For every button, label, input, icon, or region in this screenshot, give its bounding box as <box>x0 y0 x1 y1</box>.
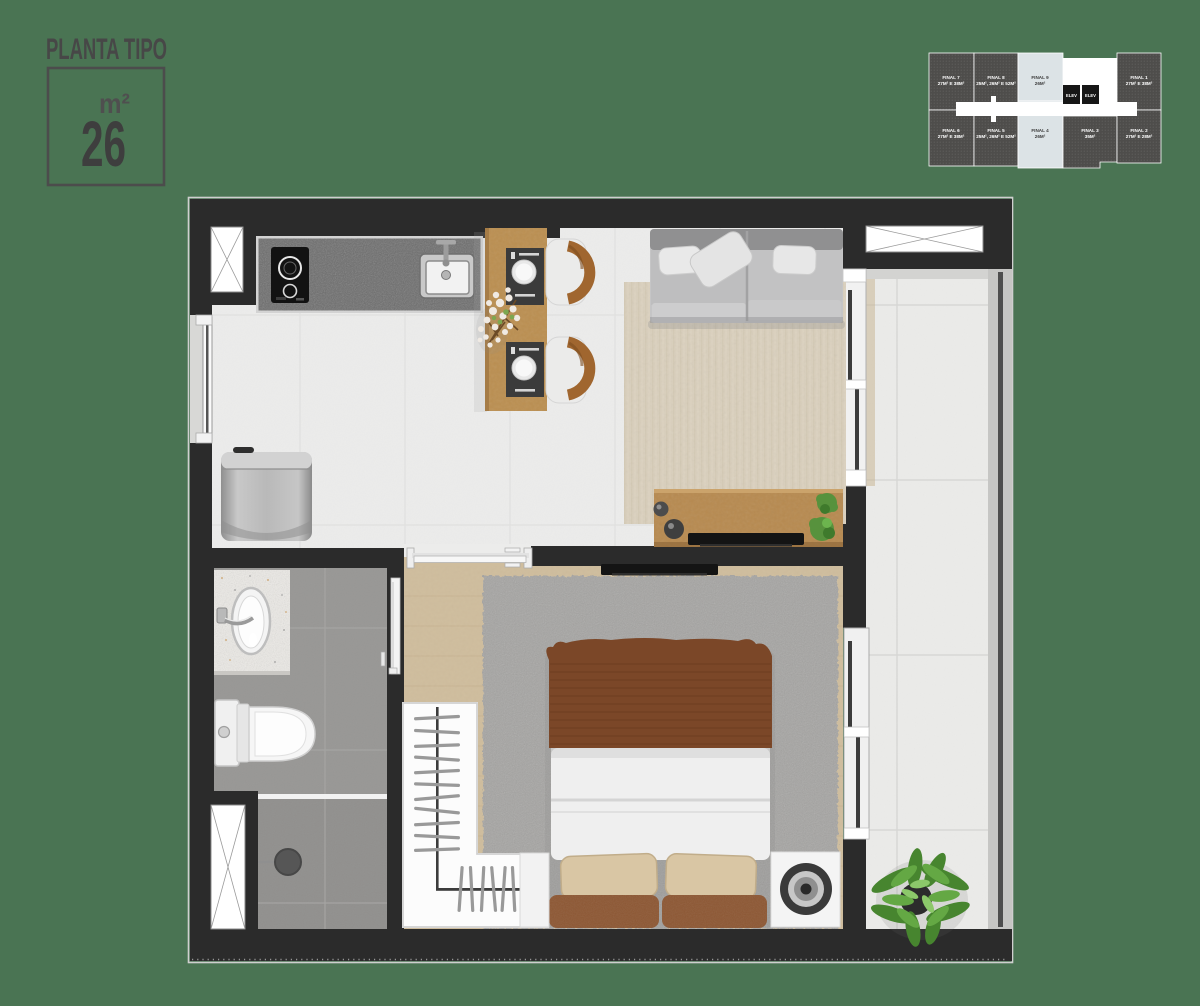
svg-text:27M² E 38M²: 27M² E 38M² <box>938 81 965 86</box>
svg-text:35M²: 35M² <box>1085 134 1096 139</box>
svg-text:27M² E 28M²: 27M² E 28M² <box>1126 134 1153 139</box>
svg-text:FINAL 4: FINAL 4 <box>1031 128 1049 133</box>
svg-text:FINAL 2: FINAL 2 <box>1130 128 1148 133</box>
svg-text:27M² E 38M²: 27M² E 38M² <box>1126 81 1153 86</box>
svg-text:FINAL 5: FINAL 5 <box>987 128 1005 133</box>
svg-text:25M², 26M² E 52M²: 25M², 26M² E 52M² <box>976 81 1016 86</box>
svg-text:ELEV: ELEV <box>1085 93 1096 98</box>
svg-text:ELEV: ELEV <box>1066 93 1077 98</box>
svg-text:FINAL 7: FINAL 7 <box>942 75 960 80</box>
svg-text:FINAL 9: FINAL 9 <box>1031 75 1049 80</box>
svg-text:25M², 26M² E 52M²: 25M², 26M² E 52M² <box>976 134 1016 139</box>
svg-text:FINAL 6: FINAL 6 <box>942 128 960 133</box>
svg-text:PLANTA TIPO: PLANTA TIPO <box>46 33 167 66</box>
svg-text:FINAL 3: FINAL 3 <box>1081 128 1099 133</box>
svg-text:FINAL 8: FINAL 8 <box>987 75 1005 80</box>
svg-text:26M²: 26M² <box>1035 134 1046 139</box>
svg-text:27M² E 38M²: 27M² E 38M² <box>938 134 965 139</box>
svg-text:26: 26 <box>81 108 126 180</box>
svg-text:FINAL 1: FINAL 1 <box>1130 75 1148 80</box>
svg-text:26M²: 26M² <box>1035 81 1046 86</box>
